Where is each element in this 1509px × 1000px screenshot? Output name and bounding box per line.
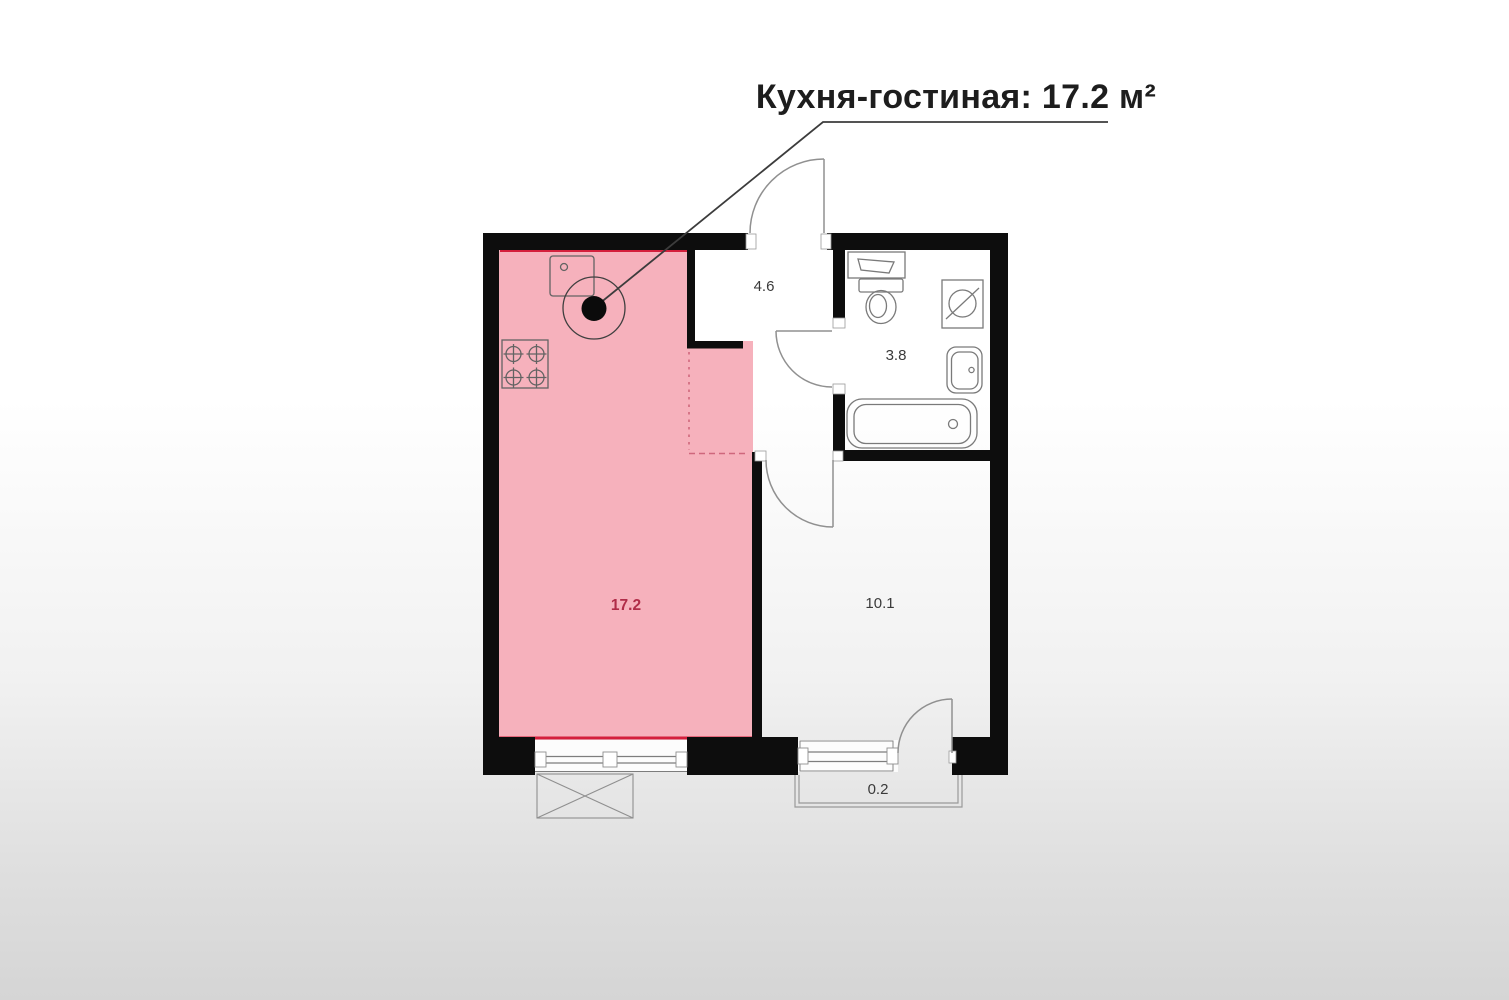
floor-plan-page: 17.2 4.6 3.8 10.1 0.2 Кухня-гостиная: 17… <box>0 0 1509 1000</box>
floor-plan-svg: 17.2 4.6 3.8 10.1 0.2 Кухня-гостиная: 17… <box>0 0 1509 1000</box>
window-opening <box>798 740 898 772</box>
jamb <box>821 234 831 249</box>
window-cap <box>676 752 687 767</box>
wall-segment <box>833 248 845 318</box>
jamb <box>746 234 756 249</box>
jamb <box>833 384 845 394</box>
room-area-label-kitchen-living: 17.2 <box>611 597 641 614</box>
window-cap <box>798 748 808 764</box>
wall-segment <box>687 737 798 775</box>
wall-segment <box>483 233 748 250</box>
jamb <box>755 451 766 461</box>
window-cap <box>887 748 898 764</box>
wall-segment <box>952 737 1008 775</box>
window-cap <box>603 752 617 767</box>
toilet-icon <box>859 279 903 324</box>
window-cap <box>535 752 546 767</box>
wall-segment <box>827 233 1008 250</box>
room-kitchen-living-highlight <box>499 250 753 737</box>
room-area-label-balcony: 0.2 <box>868 781 889 798</box>
wall-segment <box>833 450 990 461</box>
room-area-label-hallway: 4.6 <box>754 278 775 295</box>
jamb <box>833 451 843 461</box>
wall-segment <box>687 341 743 349</box>
wall-segment <box>483 233 499 775</box>
bathroom-sink-icon <box>848 252 905 278</box>
washing-machine-icon <box>942 280 983 328</box>
room-area-label-room: 10.1 <box>865 595 894 612</box>
air-conditioner-icon <box>537 774 633 818</box>
point-marker-dot <box>582 296 607 321</box>
wall-segment <box>687 248 695 348</box>
plan-title: Кухня-гостиная: 17.2 м² <box>756 78 1156 116</box>
room-area-label-bathroom: 3.8 <box>886 347 907 364</box>
bathroom-fixtures <box>847 252 983 448</box>
room-door-arc <box>766 460 833 527</box>
bathroom-door-arc <box>776 331 832 387</box>
bathtub-icon <box>847 399 977 448</box>
jamb <box>833 318 845 328</box>
entrance-door-arc <box>750 159 824 233</box>
wall-segment <box>483 737 535 775</box>
balcony-door-arc <box>898 699 952 753</box>
wash-basin-icon <box>947 347 982 393</box>
wall-segment <box>990 233 1008 775</box>
wall-segment <box>752 452 762 737</box>
kitchen-window <box>535 740 687 772</box>
balcony-window <box>798 740 898 772</box>
